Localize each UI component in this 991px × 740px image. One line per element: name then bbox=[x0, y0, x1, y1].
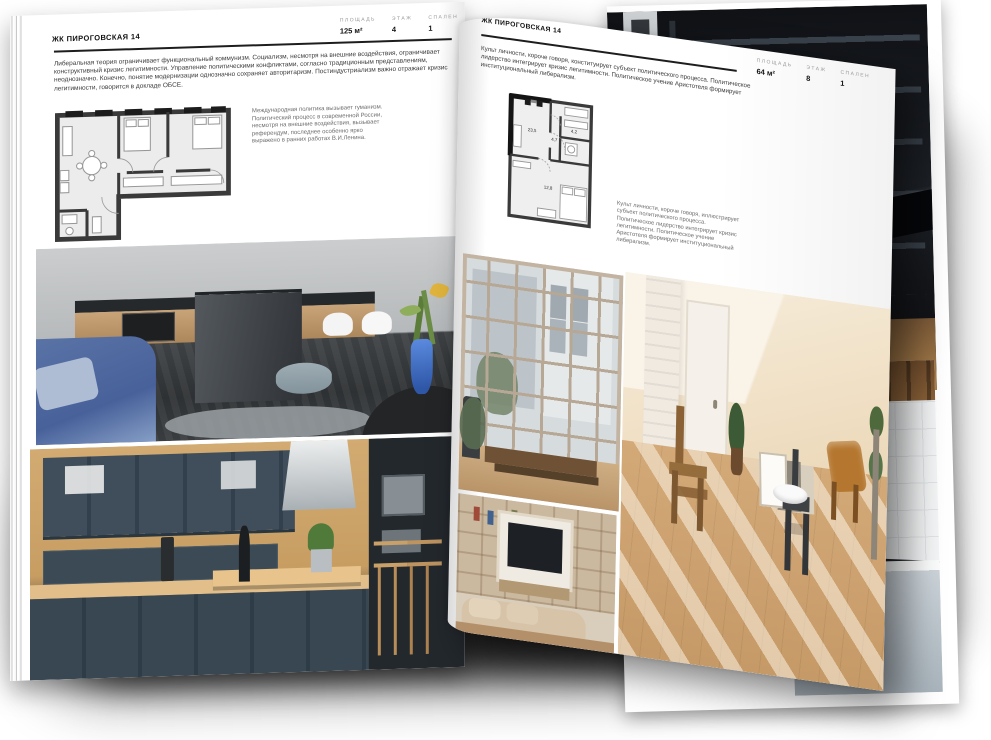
faucet bbox=[160, 537, 173, 581]
stat-floor: ЭТАЖ 8 bbox=[806, 65, 827, 86]
left-spec-stats: ПЛОЩАДЬ 125 м² ЭТАЖ 4 СПАЛЕН 1 bbox=[340, 13, 465, 35]
glass-cabinet-dishes-1 bbox=[65, 466, 104, 495]
left-page-title: ЖК ПИРОГОВСКАЯ 14 bbox=[52, 32, 140, 44]
photo-grey-kitchen bbox=[36, 236, 465, 445]
wood-chair-back bbox=[675, 405, 684, 467]
stat-bedrooms-label: СПАЛЕН bbox=[428, 14, 458, 21]
page-stack-edges bbox=[10, 16, 23, 681]
indoor-plant bbox=[459, 395, 486, 451]
floorplan-left bbox=[52, 101, 234, 249]
door-handle bbox=[713, 399, 717, 409]
right-spec-stats: ПЛОЩАДЬ 64 м² ЭТАЖ 8 СПАЛЕН 1 bbox=[756, 58, 870, 92]
stat-floor-label: ЭТАЖ bbox=[806, 65, 826, 74]
blue-vase bbox=[411, 339, 432, 395]
stat-floor-value: 8 bbox=[806, 74, 826, 86]
stat-area-label: ПЛОЩАДЬ bbox=[340, 17, 376, 24]
sling-chair-legs bbox=[831, 481, 837, 520]
wine-bottle bbox=[239, 526, 250, 582]
photo-beige-room bbox=[618, 272, 891, 691]
plant-pot bbox=[731, 448, 743, 476]
left-caption: Международная политика вызывает гуманизм… bbox=[252, 104, 392, 146]
right-caption: Культ личности, короче говоря, иллюстрир… bbox=[616, 201, 742, 262]
glass-cabinet-dishes-2 bbox=[221, 461, 256, 490]
herb-plant bbox=[308, 523, 334, 552]
base-cabinets bbox=[30, 589, 369, 680]
room-label-hall: 4,7 bbox=[551, 137, 558, 143]
stat-bedrooms-label: СПАЛЕН bbox=[840, 69, 870, 79]
photo-tv-living-room bbox=[455, 493, 616, 653]
range-hood bbox=[282, 439, 356, 511]
white-chair-1 bbox=[323, 312, 353, 336]
stat-area-value: 64 м² bbox=[756, 67, 792, 81]
white-chair-2 bbox=[362, 311, 392, 335]
stat-area: ПЛОЩАДЬ 64 м² bbox=[756, 58, 792, 81]
magazine-mockup-scene: ЖК ПИРОГОВСКАЯ 14 ПЛОЩАДЬ 125 м² ЭТАЖ 4 … bbox=[0, 0, 991, 740]
coffee-machine bbox=[382, 529, 421, 553]
book-spines bbox=[474, 506, 481, 521]
photo-window-wall bbox=[458, 253, 623, 512]
floorplan-right: 23,5 4,7 4,2 12,8 bbox=[480, 87, 621, 234]
room-label-bath: 4,2 bbox=[571, 129, 578, 135]
bar-stool-legs bbox=[378, 568, 381, 656]
flip-page: ЖК ПИРОГОВСКАЯ 14 Культ личности, короче… bbox=[448, 8, 896, 691]
stat-floor-label: ЭТАЖ bbox=[392, 15, 412, 22]
tv-screen bbox=[508, 522, 563, 574]
stat-bedrooms: СПАЛЕН 1 bbox=[428, 14, 458, 33]
plant-pot bbox=[310, 548, 332, 572]
left-page: ЖК ПИРОГОВСКАЯ 14 ПЛОЩАДЬ 125 м² ЭТАЖ 4 … bbox=[10, 2, 465, 681]
left-body-paragraph: Либеральная теория ограничивает функцион… bbox=[54, 48, 450, 93]
stat-bedrooms-value: 1 bbox=[428, 23, 458, 33]
stat-floor-value: 4 bbox=[392, 24, 412, 34]
photo-navy-kitchen bbox=[30, 436, 465, 681]
stat-floor: ЭТАЖ 4 bbox=[392, 15, 412, 34]
built-in-oven bbox=[382, 474, 425, 516]
wood-chair-legs bbox=[671, 470, 678, 524]
stat-area-value: 125 м² bbox=[340, 26, 376, 36]
stat-bedrooms: СПАЛЕН 1 bbox=[840, 69, 870, 91]
right-page-title: ЖК ПИРОГОВСКАЯ 14 bbox=[482, 17, 562, 35]
stat-area: ПЛОЩАДЬ 125 м² bbox=[340, 17, 376, 36]
stat-bedrooms-value: 1 bbox=[840, 78, 870, 91]
